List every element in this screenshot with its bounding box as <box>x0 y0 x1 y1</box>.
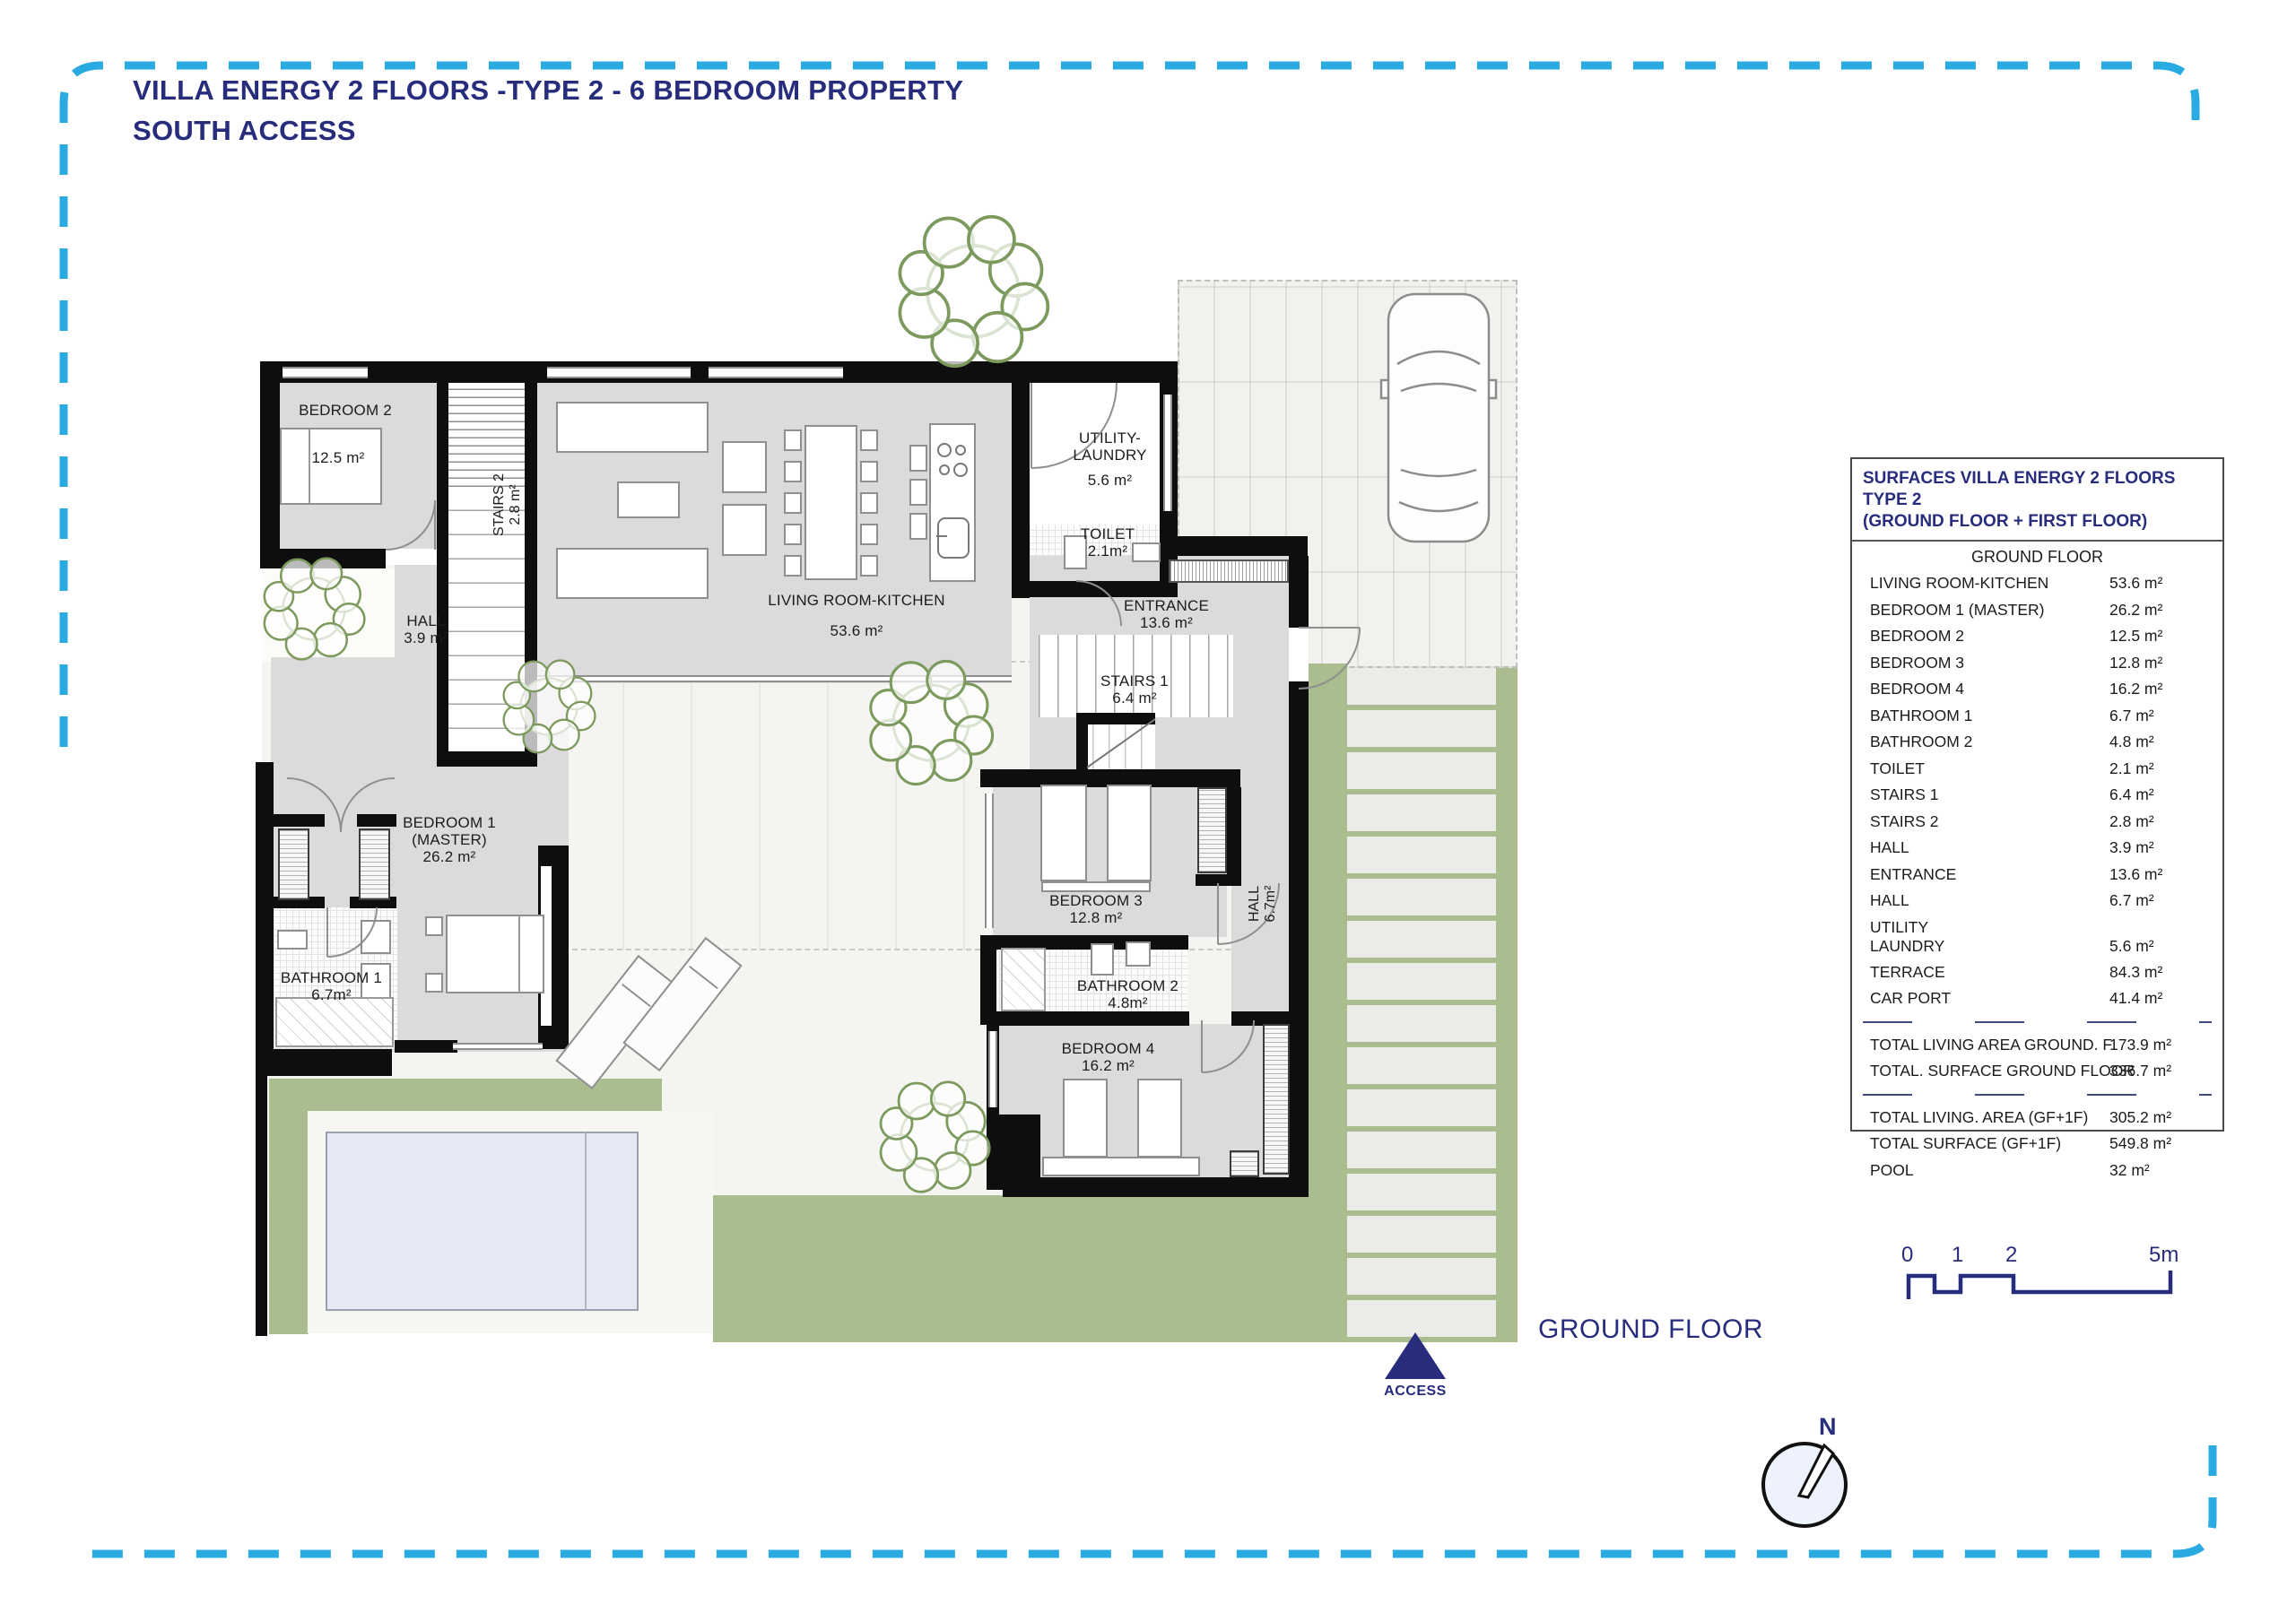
wall <box>1289 556 1309 631</box>
table-row-total: TOTAL LIVING. AREA (GF+1F)305.2 m² <box>1852 1105 2222 1132</box>
table-row: TOILET2.1 m² <box>1852 756 2222 783</box>
window <box>985 794 994 928</box>
scale-tick-0: 0 <box>1901 1243 1913 1268</box>
wardrobe-bedroom1 <box>359 828 390 900</box>
table-row: BATHROOM 24.8 m² <box>1852 729 2222 756</box>
scale-tick-1: 1 <box>1952 1243 1963 1268</box>
surfaces-table-title-line2: (GROUND FLOOR + FIRST FLOOR) <box>1863 511 2212 533</box>
armchair <box>722 504 767 556</box>
garden-bottom <box>713 1195 1347 1342</box>
wall <box>269 814 325 827</box>
dining-chair <box>860 524 878 545</box>
wall <box>525 361 537 767</box>
wall <box>1012 581 1178 597</box>
table-row: STAIRS 16.4 m² <box>1852 782 2222 809</box>
dining-chair <box>860 429 878 451</box>
kitchen-island <box>929 423 976 582</box>
table-row: BEDROOM 1 (MASTER)26.2 m² <box>1852 597 2222 624</box>
dining-chair <box>860 492 878 514</box>
wardrobe-bedroom4 <box>1263 1024 1290 1175</box>
garden-strip-top-of-pool <box>269 1079 662 1111</box>
bed-single-bedroom3 <box>1040 785 1087 881</box>
nightstand <box>425 973 443 993</box>
nightstand <box>425 916 443 936</box>
bed-double-bedroom2 <box>280 428 382 505</box>
table-row: HALL6.7 m² <box>1852 888 2222 915</box>
table-row-total: TOTAL LIVING AREA GROUND. F173.9 m² <box>1852 1032 2222 1059</box>
stairs1-landing <box>1076 717 1155 769</box>
table-divider <box>1863 1021 2212 1023</box>
wall <box>256 1076 267 1336</box>
kitchen-cabinet <box>909 445 927 472</box>
dining-chair <box>860 461 878 482</box>
wall <box>1196 874 1241 886</box>
wall <box>1227 787 1241 883</box>
entrance-bench <box>1169 559 1289 583</box>
wall <box>538 1031 569 1049</box>
room-label-stairs2: STAIRS 2 2.8 m² <box>491 455 524 554</box>
wall <box>260 549 386 568</box>
surfaces-table-section-header: GROUND FLOOR <box>1852 542 2222 570</box>
window <box>453 1043 543 1050</box>
room-label-bedroom4: BEDROOM 4 16.2 m² <box>1048 1040 1169 1074</box>
bed-foot-shelf <box>1041 881 1151 892</box>
walkway-green-edge <box>1496 668 1518 1342</box>
wall <box>437 361 448 767</box>
room-label-bathroom2: BATHROOM 2 4.8m² <box>1067 977 1188 1011</box>
wardrobe-bedroom4-small <box>1230 1150 1259 1177</box>
room-label-bedroom1: BEDROOM 1 (MASTER) 26.2 m² <box>392 814 507 865</box>
wall <box>987 1011 1189 1026</box>
kitchen-cabinet <box>909 479 927 506</box>
table-row: LIVING ROOM-KITCHEN53.6 m² <box>1852 570 2222 597</box>
wall <box>357 814 396 827</box>
room-label-utility: UTILITY- LAUNDRY 5.6 m² <box>1054 429 1166 489</box>
surfaces-table-title-line1: SURFACES VILLA ENERGY 2 FLOORS TYPE 2 <box>1863 468 2212 511</box>
garden-strip-east <box>1309 664 1347 1342</box>
bathroom2-wc <box>1091 943 1114 976</box>
wall <box>256 762 274 1069</box>
room-label-bedroom3: BEDROOM 3 12.8 m² <box>1038 892 1154 926</box>
window <box>283 367 368 378</box>
wall <box>1030 361 1178 383</box>
sofa-top <box>556 402 709 453</box>
pool <box>326 1132 639 1311</box>
ground-floor-label: GROUND FLOOR <box>1538 1314 1763 1345</box>
room-label-bedroom2-area: 12.5 m² <box>289 449 387 466</box>
table-row: UTILITYLAUNDRY 5.6 m² <box>1852 915 2222 959</box>
wall <box>1076 713 1155 724</box>
table-row-total: TOTAL SURFACE (GF+1F)549.8 m² <box>1852 1131 2222 1158</box>
dining-chair <box>784 555 802 577</box>
room-label-living-area: 53.6 m² <box>812 622 901 639</box>
wall <box>260 361 280 568</box>
table-row: CAR PORT41.4 m² <box>1852 985 2222 1012</box>
table-row: BEDROOM 212.5 m² <box>1852 623 2222 650</box>
room-label-entrance: ENTRANCE 13.6 m² <box>1115 597 1218 631</box>
table-row: STAIRS 22.8 m² <box>1852 809 2222 836</box>
room-label-bedroom2-name: BEDROOM 2 <box>291 402 399 419</box>
table-row-total: POOL32 m² <box>1852 1158 2222 1184</box>
room-label-hall1: HALL 3.9 m² <box>381 612 471 646</box>
bathroom2-sink <box>1126 941 1151 967</box>
surfaces-table: SURFACES VILLA ENERGY 2 FLOORS TYPE 2 (G… <box>1850 457 2224 1132</box>
table-row: BEDROOM 416.2 m² <box>1852 676 2222 703</box>
tree-icon <box>900 217 1048 367</box>
bed-single-bedroom4 <box>1137 1079 1182 1158</box>
bathroom1-wc <box>361 920 391 954</box>
room-label-hall2: HALL 6.7m² <box>1247 863 1279 944</box>
table-row-total: TOTAL. SURFACE GROUND FLOOR336.7 m² <box>1852 1058 2222 1085</box>
wall <box>1003 1177 1308 1197</box>
dining-table <box>804 425 857 580</box>
wall <box>395 1040 457 1053</box>
table-row: HALL3.9 m² <box>1852 835 2222 862</box>
bed-pillow-line <box>309 429 310 503</box>
wall <box>437 751 537 767</box>
wall <box>1166 536 1308 556</box>
wall <box>1012 383 1030 598</box>
garden-strip-left-of-pool <box>269 1079 309 1334</box>
scale-tick-5m: 5m <box>2149 1243 2179 1268</box>
surfaces-table-title: SURFACES VILLA ENERGY 2 FLOORS TYPE 2 (G… <box>1852 459 2222 542</box>
scale-tick-2: 2 <box>2005 1243 2017 1268</box>
bathroom1-shower <box>275 997 394 1047</box>
wall <box>256 1049 392 1076</box>
table-row: BATHROOM 16.7 m² <box>1852 703 2222 730</box>
bed-double-bedroom1 <box>446 915 544 993</box>
dining-chair <box>860 555 878 577</box>
table-row: ENTRANCE13.6 m² <box>1852 862 2222 889</box>
coffee-table <box>617 481 680 518</box>
dining-chair <box>784 429 802 451</box>
window <box>547 367 691 378</box>
sofa-bottom <box>556 548 709 599</box>
access-arrow-icon <box>1385 1332 1446 1379</box>
dining-chair <box>784 461 802 482</box>
bed-foot-shelf <box>1042 1157 1200 1176</box>
bathroom2-shower <box>1001 948 1046 1011</box>
walkway-east <box>1347 668 1496 1342</box>
courtyard-patio <box>262 568 395 662</box>
armchair <box>722 441 767 493</box>
dining-chair <box>784 492 802 514</box>
wall <box>1076 713 1088 773</box>
entrance-door-opening <box>1289 628 1309 681</box>
room-label-toilet: TOILET 2.1m² <box>1058 525 1157 559</box>
window <box>709 367 843 378</box>
bed-pillow-line <box>518 916 520 992</box>
table-row: TERRACE84.3 m² <box>1852 959 2222 986</box>
wardrobe-bedroom1 <box>278 828 309 900</box>
bed-single-bedroom4 <box>1063 1079 1108 1158</box>
pool-divider <box>585 1132 587 1310</box>
room-label-bathroom1: BATHROOM 1 6.7m² <box>271 969 392 1003</box>
window-sliding-living <box>537 675 1012 682</box>
wall <box>1289 681 1309 1197</box>
dining-chair <box>784 524 802 545</box>
table-divider <box>1863 1094 2212 1096</box>
floor-plan-page: VILLA ENERGY 2 FLOORS -TYPE 2 - 6 BEDROO… <box>0 0 2296 1622</box>
kitchen-cabinet <box>909 513 927 540</box>
table-row: BEDROOM 312.8 m² <box>1852 650 2222 677</box>
room-label-living-name: LIVING ROOM-KITCHEN <box>767 592 946 609</box>
bed-single-bedroom3 <box>1107 785 1152 881</box>
access-label: ACCESS <box>1375 1383 1456 1400</box>
bathroom1-counter <box>277 930 308 950</box>
wardrobe-bedroom3 <box>1197 787 1227 873</box>
compass-north-label: N <box>1819 1413 1837 1441</box>
room-label-stairs1: STAIRS 1 6.4 m² <box>1081 672 1188 707</box>
window <box>988 1031 997 1107</box>
